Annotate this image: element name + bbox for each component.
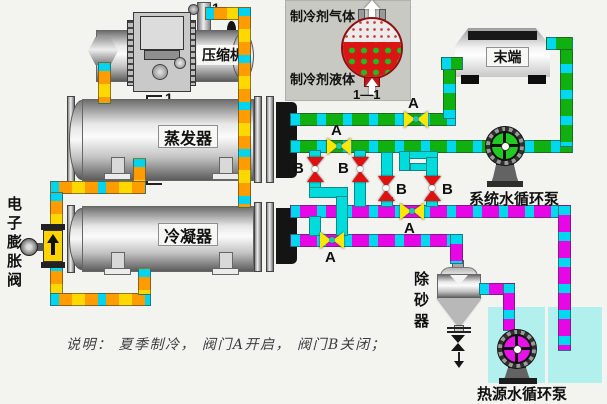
evaporator-foot — [219, 157, 233, 174]
pipe-liquid-h1 — [50, 181, 146, 194]
pipe-chilled-supply-elbow — [441, 57, 463, 70]
condenser-right-flange — [254, 202, 262, 272]
valve-b4[interactable] — [424, 176, 441, 201]
expansion-valve-cap — [41, 262, 65, 268]
pipe-crossover — [354, 179, 366, 207]
pipe-source-supply-v — [450, 234, 463, 264]
flow-arrow-stem — [51, 243, 55, 255]
refrigerant-vessel — [341, 17, 403, 79]
system-pump-label: 系统水循环泵 — [469, 188, 559, 209]
evaporator-foot — [111, 157, 125, 174]
service-port — [152, 64, 168, 80]
drain-arrow-icon — [454, 361, 464, 368]
gearbox-top-plate — [140, 16, 184, 50]
section-1-1-label: 1—1 — [353, 87, 380, 102]
valve-b2-label: B — [338, 160, 349, 177]
valve-b3-label: B — [396, 181, 407, 198]
valve-a4[interactable] — [320, 232, 344, 249]
hvac-schematic-canvas: 制冷剂气体 制冷剂液体 1—1 1 1 1 压缩机 蒸发器 — [0, 0, 607, 404]
heat-source-pump-label: 热源水循环泵 — [477, 383, 567, 404]
sand-remover-inner-cone — [450, 275, 468, 285]
drain-valve-icon[interactable] — [451, 335, 465, 343]
terminal-foot — [461, 75, 479, 84]
section-mark-line — [146, 183, 162, 185]
evaporator-label: 蒸发器 — [158, 125, 218, 148]
valve-b4-label: B — [442, 181, 453, 198]
valve-b2[interactable] — [352, 157, 369, 182]
terminal-foot — [528, 75, 546, 84]
valve-b3[interactable] — [378, 176, 395, 201]
section-mark-line — [146, 95, 162, 97]
condenser-foot — [111, 252, 125, 269]
condenser-label: 冷凝器 — [158, 223, 218, 246]
pipe-liquid-h2 — [50, 293, 151, 306]
drain-valve-icon[interactable] — [451, 343, 465, 351]
condenser-foot — [219, 252, 233, 269]
sand-remover-cone — [437, 298, 481, 327]
gas-out-arrow-icon — [364, 0, 380, 18]
valve-a2-label: A — [331, 122, 342, 139]
pipe-suction — [98, 62, 111, 104]
pipe-chilled-return-elbow — [546, 37, 573, 50]
pipe-liquid-to-condenser — [138, 268, 151, 295]
drain-flange-line — [447, 327, 471, 329]
condenser-foot-base — [212, 268, 239, 275]
system-pump-plate — [487, 181, 523, 187]
system-pump-hub — [501, 142, 510, 151]
drain-arrow-stem — [458, 352, 460, 361]
valve-a3[interactable] — [400, 203, 424, 220]
terminal-air-slot — [468, 31, 537, 40]
valve-b1[interactable] — [307, 157, 324, 182]
pipe-crossover — [336, 196, 348, 236]
pipe-chilled-return-v — [560, 37, 573, 147]
valve-a4-label: A — [325, 249, 336, 266]
valve-motor-link — [37, 243, 44, 251]
evaporator-foot-base — [212, 173, 239, 180]
pipe-discharge-v — [238, 7, 251, 208]
sand-remover-label: 除砂器 — [410, 271, 431, 335]
pipe-crossover — [381, 152, 393, 179]
valve-a1-label: A — [408, 95, 419, 112]
valve-a1[interactable] — [404, 111, 428, 128]
drain-flange-line — [447, 331, 471, 333]
valve-a3-label: A — [404, 220, 415, 237]
flow-arrow-icon — [47, 234, 59, 243]
valve-a2[interactable] — [327, 138, 351, 155]
sight-glass — [174, 57, 186, 69]
pipe-crossover — [399, 151, 410, 171]
terminal-label: 末端 — [486, 47, 529, 67]
condenser-right-flange — [266, 202, 274, 272]
heat-pump-hub — [513, 345, 522, 354]
pipe-chilled-supply-h — [290, 113, 456, 126]
pipe-sand-to-pump-v — [503, 283, 515, 331]
condenser-foot-base — [104, 268, 131, 275]
expansion-valve-label: 电子膨胀阀 — [3, 196, 24, 298]
system-pump-base — [492, 164, 518, 182]
valve-b1-label: B — [293, 160, 304, 177]
pipe-source-return-v — [558, 205, 571, 351]
evaporator-right-flange — [266, 96, 274, 183]
evaporator-foot-base — [104, 173, 131, 180]
evaporator-right-flange — [254, 96, 262, 183]
operating-note: 说明： 夏季制冷， 阀门A开启， 阀门B关闭； — [66, 334, 386, 354]
water-well-right — [548, 307, 602, 383]
